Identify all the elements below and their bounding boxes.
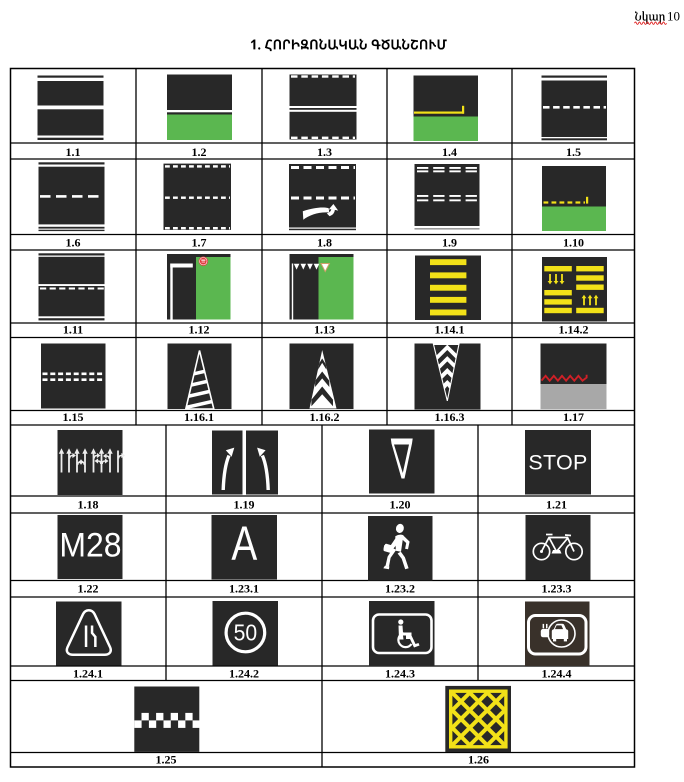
svg-text:1.8: 1.8 (317, 236, 332, 250)
svg-text:1.24.3: 1.24.3 (385, 667, 415, 681)
svg-text:1.14.1: 1.14.1 (435, 323, 465, 337)
svg-text:1.13: 1.13 (314, 323, 335, 337)
svg-text:1.2: 1.2 (192, 145, 207, 159)
svg-text:1.16.2: 1.16.2 (310, 410, 340, 424)
svg-text:10: 10 (667, 9, 680, 24)
svg-text:1.14.2: 1.14.2 (559, 323, 589, 337)
svg-text:1.16.1: 1.16.1 (184, 410, 214, 424)
svg-text:1.5: 1.5 (566, 145, 581, 159)
svg-text:1.9: 1.9 (442, 236, 457, 250)
svg-text:1.6: 1.6 (66, 236, 81, 250)
svg-text:1.19: 1.19 (234, 498, 255, 512)
svg-text:1.22: 1.22 (78, 582, 99, 596)
svg-text:STOP: STOP (528, 450, 587, 474)
svg-text:1.20: 1.20 (390, 498, 411, 512)
svg-text:M28: M28 (59, 526, 121, 564)
svg-text:1.18: 1.18 (78, 498, 99, 512)
svg-text:1.24.4: 1.24.4 (542, 667, 572, 681)
svg-text:1.15: 1.15 (63, 410, 84, 424)
svg-text:1.16.3: 1.16.3 (435, 410, 465, 424)
svg-text:1.23.3: 1.23.3 (542, 582, 572, 596)
svg-text:1.11: 1.11 (63, 323, 83, 337)
svg-text:1.23.1: 1.23.1 (229, 582, 259, 596)
svg-text:1.24.1: 1.24.1 (73, 667, 103, 681)
svg-text:1.10: 1.10 (563, 236, 584, 250)
svg-text:1.7: 1.7 (192, 236, 207, 250)
svg-text:50: 50 (234, 620, 258, 646)
svg-text:1.12: 1.12 (189, 323, 210, 337)
svg-text:1.25: 1.25 (156, 753, 177, 767)
svg-text:1.21: 1.21 (546, 498, 567, 512)
svg-text:1.17: 1.17 (563, 410, 584, 424)
svg-text:1.1: 1.1 (66, 145, 81, 159)
svg-text:1.24.2: 1.24.2 (229, 667, 259, 681)
svg-text:1.26: 1.26 (468, 753, 489, 767)
svg-text:A: A (231, 516, 258, 570)
svg-text:1.23.2: 1.23.2 (385, 582, 415, 596)
svg-text:1.3: 1.3 (317, 145, 332, 159)
svg-text:1.4: 1.4 (442, 145, 457, 159)
